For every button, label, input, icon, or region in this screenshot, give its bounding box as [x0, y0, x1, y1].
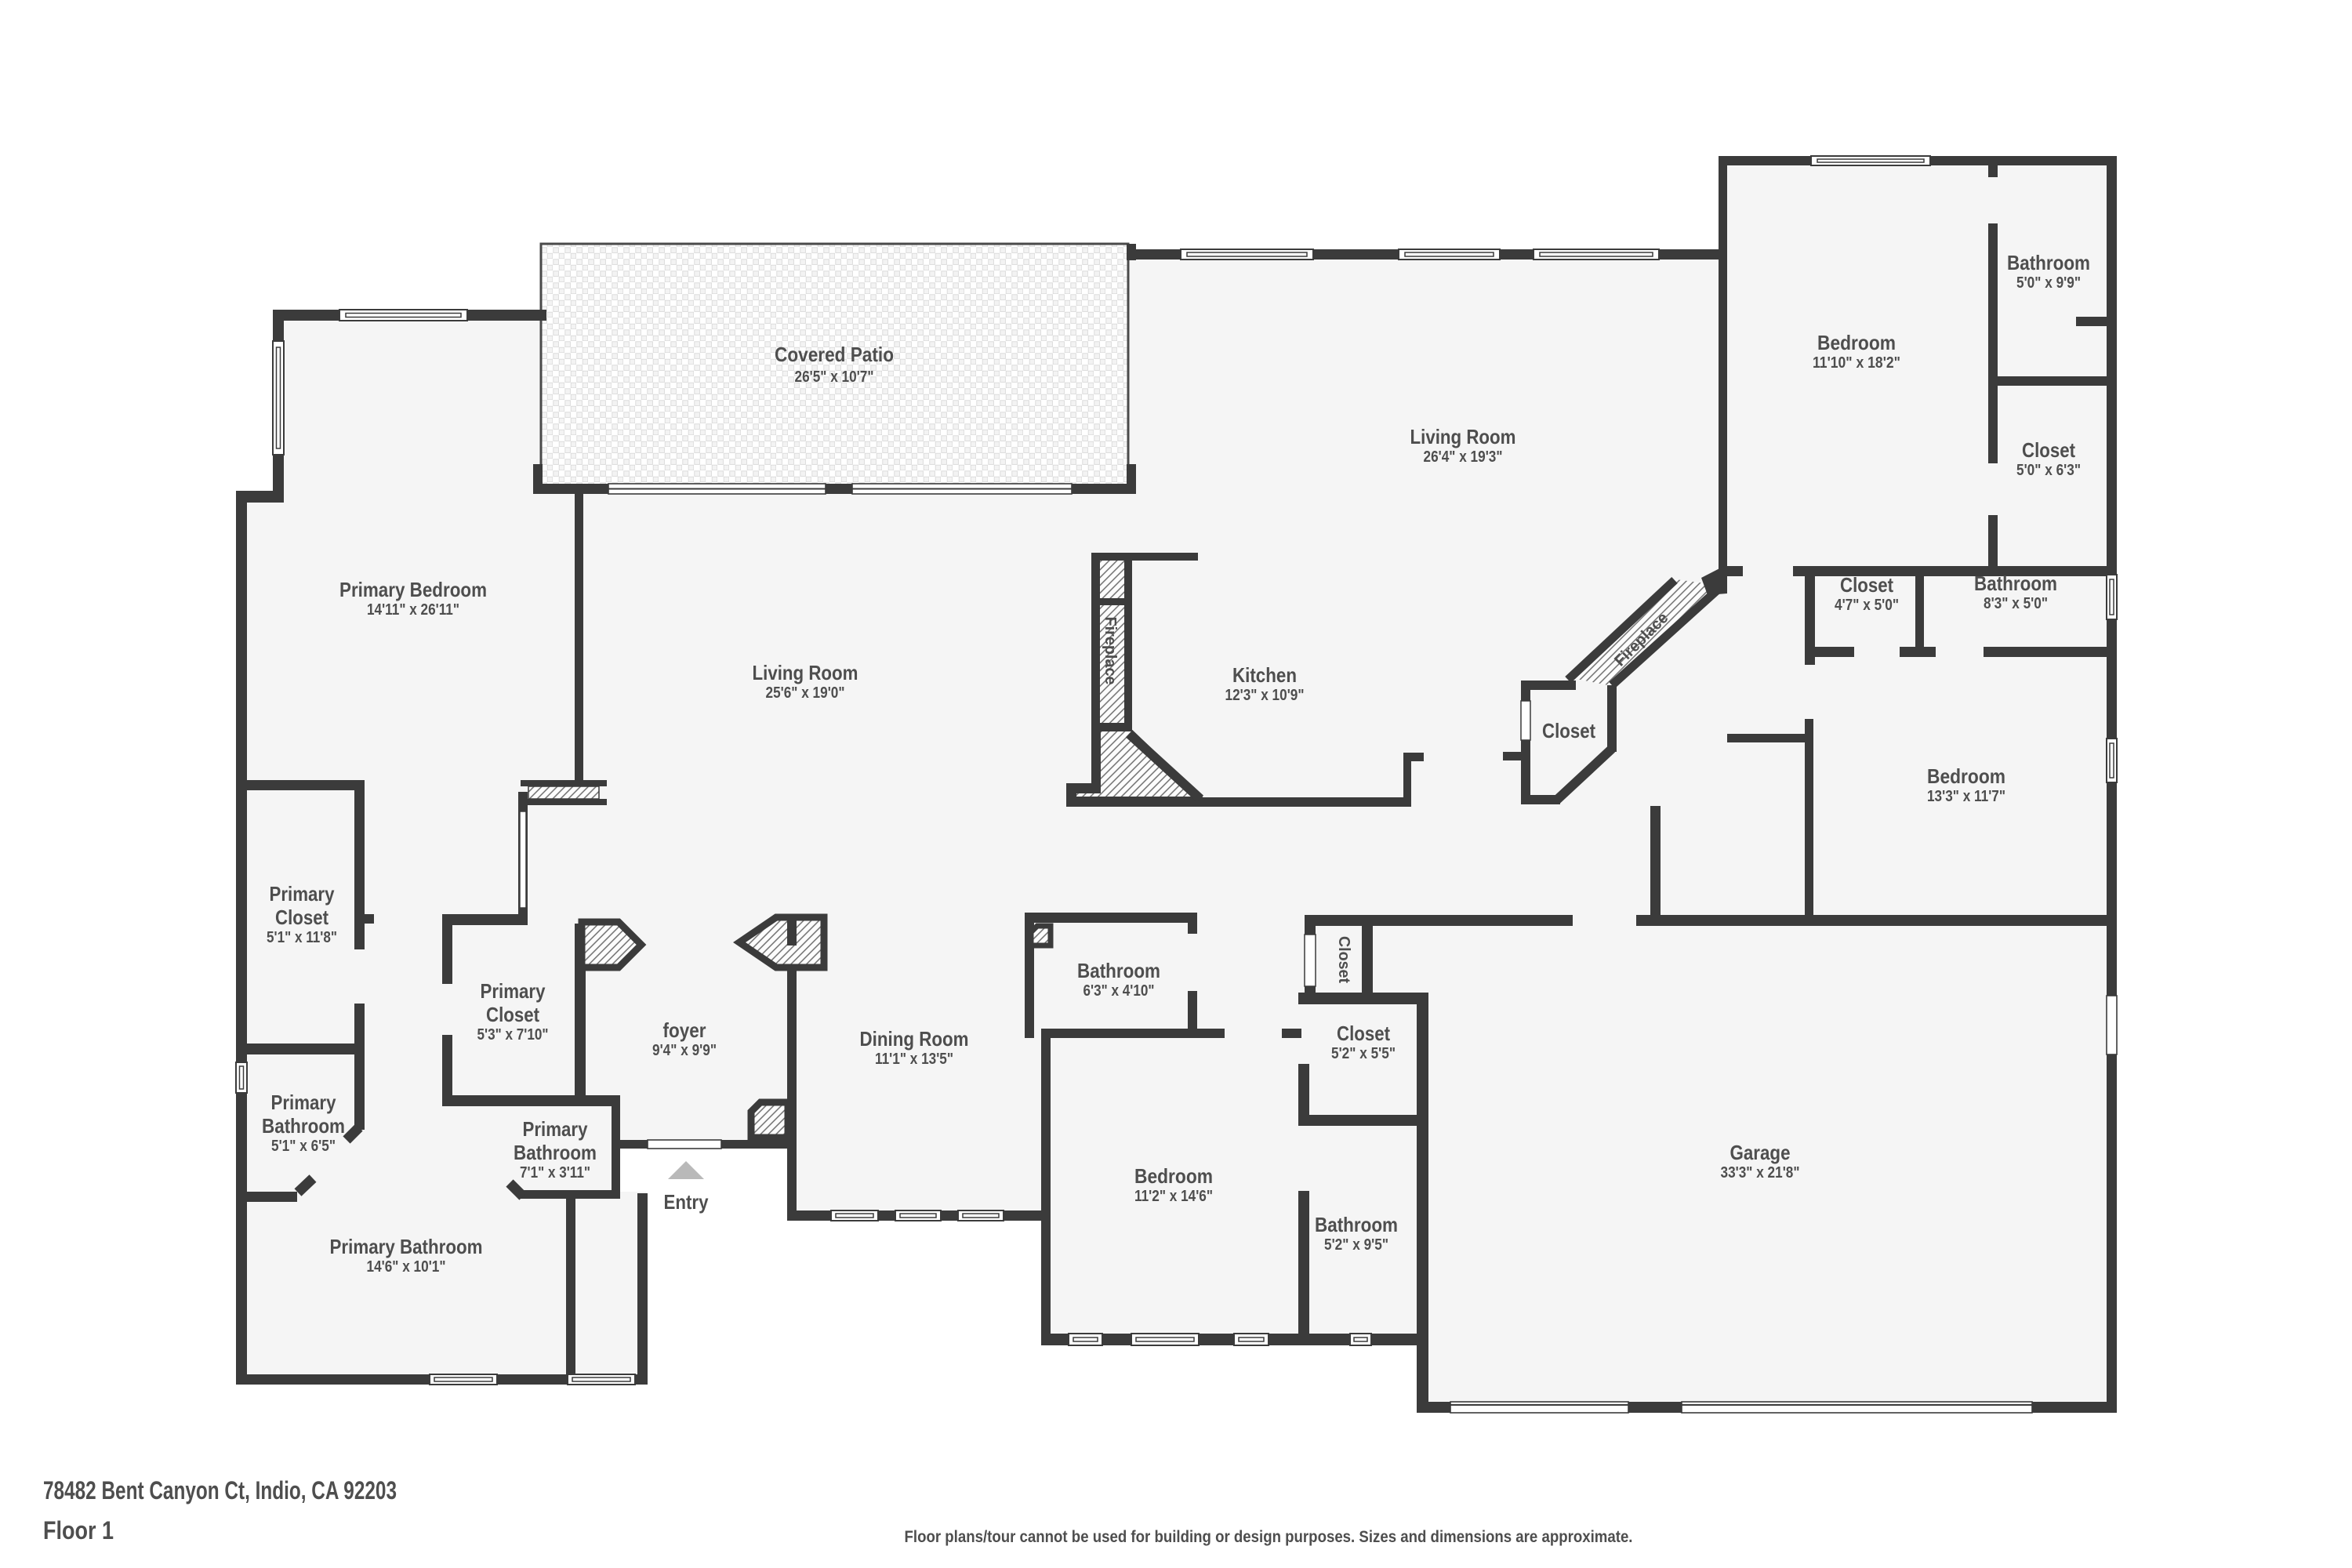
svg-text:5'0" x 6'3": 5'0" x 6'3"	[2016, 462, 2081, 479]
svg-text:26'4" x 19'3": 26'4" x 19'3"	[1424, 448, 1503, 466]
svg-text:14'11" x 26'11": 14'11" x 26'11"	[367, 601, 459, 619]
svg-text:Floor 1: Floor 1	[43, 1516, 114, 1544]
svg-text:Closet: Closet	[1337, 1022, 1390, 1045]
svg-text:Bathroom: Bathroom	[262, 1114, 345, 1138]
svg-text:foyer: foyer	[663, 1018, 706, 1042]
svg-text:Floor plans/tour cannot be use: Floor plans/tour cannot be used for buil…	[905, 1528, 1633, 1546]
svg-text:Bedroom: Bedroom	[1817, 331, 1896, 354]
svg-text:7'1" x 3'11": 7'1" x 3'11"	[520, 1164, 590, 1181]
svg-text:9'4" x 9'9": 9'4" x 9'9"	[652, 1042, 717, 1059]
svg-text:Living Room: Living Room	[753, 661, 858, 684]
svg-text:5'1" x 6'5": 5'1" x 6'5"	[271, 1138, 336, 1155]
svg-text:Bathroom: Bathroom	[2007, 251, 2090, 274]
svg-text:Bathroom: Bathroom	[514, 1141, 597, 1164]
svg-text:Closet: Closet	[486, 1003, 539, 1026]
svg-text:Primary: Primary	[481, 979, 546, 1003]
svg-text:12'3" x 10'9": 12'3" x 10'9"	[1225, 687, 1305, 704]
svg-text:Bathroom: Bathroom	[1315, 1213, 1398, 1236]
svg-text:4'7" x 5'0": 4'7" x 5'0"	[1835, 597, 1899, 614]
svg-text:Closet: Closet	[1840, 573, 1893, 597]
svg-text:11'10" x 18'2": 11'10" x 18'2"	[1813, 354, 1900, 372]
svg-text:14'6" x 10'1": 14'6" x 10'1"	[367, 1258, 446, 1276]
svg-text:Living Room: Living Room	[1410, 425, 1516, 448]
svg-text:Closet: Closet	[275, 906, 328, 929]
svg-text:6'3" x 4'10": 6'3" x 4'10"	[1083, 982, 1155, 1000]
svg-text:5'3" x 7'10": 5'3" x 7'10"	[477, 1026, 549, 1044]
svg-text:Primary Bathroom: Primary Bathroom	[330, 1235, 483, 1258]
svg-text:26'5" x 10'7": 26'5" x 10'7"	[795, 368, 874, 386]
svg-text:11'1" x 13'5": 11'1" x 13'5"	[875, 1051, 953, 1068]
svg-text:Covered Patio: Covered Patio	[775, 343, 894, 366]
svg-text:Primary: Primary	[523, 1117, 588, 1141]
svg-text:33'3" x 21'8": 33'3" x 21'8"	[1721, 1164, 1800, 1181]
svg-text:Fireplace: Fireplace	[1102, 617, 1119, 685]
svg-text:5'2" x 9'5": 5'2" x 9'5"	[1324, 1236, 1388, 1254]
svg-text:25'6" x 19'0": 25'6" x 19'0"	[766, 684, 845, 702]
svg-text:Closet: Closet	[1335, 936, 1352, 983]
svg-text:8'3" x 5'0": 8'3" x 5'0"	[1984, 595, 2048, 612]
svg-text:Bathroom: Bathroom	[1077, 959, 1160, 982]
svg-text:78482 Bent Canyon Ct, Indio, C: 78482 Bent Canyon Ct, Indio, CA 92203	[43, 1476, 397, 1504]
svg-text:Bathroom: Bathroom	[1974, 572, 2057, 595]
svg-text:11'2" x 14'6": 11'2" x 14'6"	[1134, 1188, 1213, 1205]
svg-text:5'2" x 5'5": 5'2" x 5'5"	[1331, 1045, 1396, 1062]
svg-text:Entry: Entry	[664, 1190, 709, 1214]
svg-text:Bedroom: Bedroom	[1134, 1164, 1213, 1188]
svg-text:5'1" x 11'8": 5'1" x 11'8"	[267, 929, 337, 946]
svg-text:Closet: Closet	[1542, 719, 1595, 742]
svg-text:Closet: Closet	[2022, 438, 2075, 462]
svg-text:Primary: Primary	[271, 1091, 336, 1114]
svg-text:Primary: Primary	[270, 882, 335, 906]
svg-text:13'3" x 11'7": 13'3" x 11'7"	[1927, 788, 2005, 805]
svg-text:5'0" x 9'9": 5'0" x 9'9"	[2016, 274, 2081, 292]
svg-text:Primary Bedroom: Primary Bedroom	[339, 578, 487, 601]
svg-text:Dining Room: Dining Room	[860, 1027, 969, 1051]
svg-text:Bedroom: Bedroom	[1927, 764, 2005, 788]
svg-text:Kitchen: Kitchen	[1232, 663, 1297, 687]
svg-text:Garage: Garage	[1730, 1141, 1791, 1164]
